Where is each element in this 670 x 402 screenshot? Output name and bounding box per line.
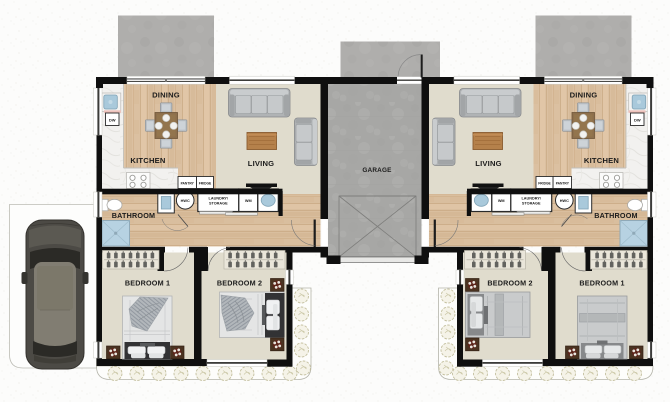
svg-text:WM: WM (498, 199, 505, 203)
svg-text:LAUNDRY/: LAUNDRY/ (521, 197, 541, 201)
svg-text:STORAGE: STORAGE (522, 202, 541, 206)
svg-text:GARAGE: GARAGE (362, 167, 392, 174)
svg-text:BEDROOM 2: BEDROOM 2 (217, 279, 262, 288)
svg-text:FRIDGE: FRIDGE (199, 181, 212, 185)
svg-text:PANTRY: PANTRY (181, 181, 195, 185)
svg-text:BATHROOM: BATHROOM (594, 211, 637, 220)
svg-text:DW: DW (109, 118, 116, 123)
svg-text:LAUNDRY/: LAUNDRY/ (209, 197, 229, 201)
svg-text:BEDROOM 1: BEDROOM 1 (579, 279, 624, 288)
svg-text:KITCHEN: KITCHEN (130, 156, 165, 165)
svg-text:KITCHEN: KITCHEN (584, 156, 619, 165)
svg-text:BEDROOM 2: BEDROOM 2 (487, 279, 532, 288)
svg-text:STORAGE: STORAGE (209, 202, 228, 206)
svg-text:HWC: HWC (181, 199, 190, 203)
svg-text:DINING: DINING (152, 91, 180, 100)
svg-text:PANTRY: PANTRY (556, 181, 570, 185)
svg-text:DINING: DINING (570, 91, 598, 100)
svg-text:DW: DW (634, 118, 641, 123)
svg-text:BEDROOM 1: BEDROOM 1 (125, 279, 170, 288)
svg-text:LIVING: LIVING (475, 159, 502, 168)
svg-text:WM: WM (245, 199, 252, 203)
svg-text:BATHROOM: BATHROOM (112, 211, 155, 220)
svg-text:LIVING: LIVING (248, 159, 275, 168)
svg-text:HWC: HWC (560, 199, 569, 203)
svg-text:FRIDGE: FRIDGE (538, 181, 551, 185)
